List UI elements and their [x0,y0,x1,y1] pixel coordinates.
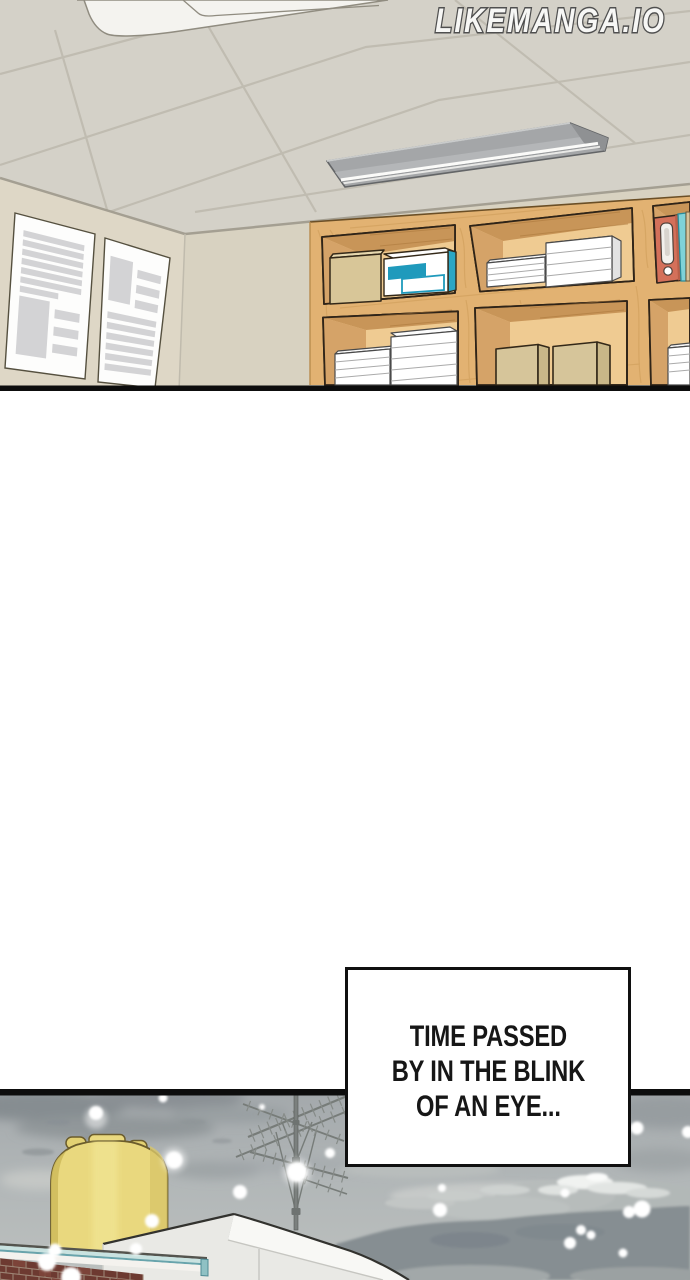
svg-text:LIKEMANGA.IO: LIKEMANGA.IO [435,1,666,39]
